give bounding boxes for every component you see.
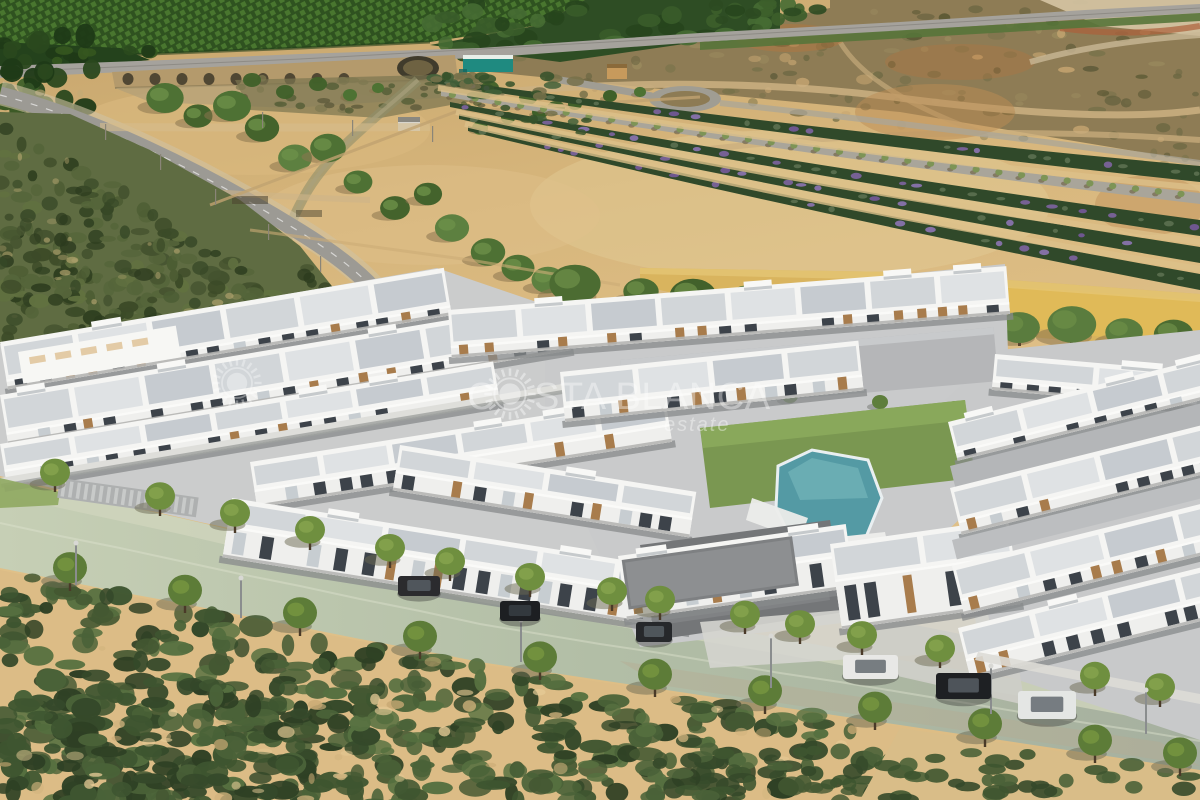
svg-text:C: C: [467, 376, 495, 418]
svg-text:estate: estate: [664, 414, 730, 436]
svg-text:STA BLANCA: STA BLANCA: [534, 376, 771, 418]
